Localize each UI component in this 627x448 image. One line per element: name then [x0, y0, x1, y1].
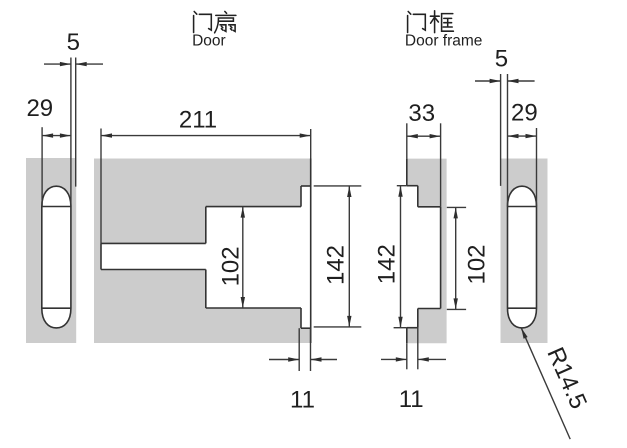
svg-text:29: 29	[26, 95, 53, 122]
svg-text:R14.5: R14.5	[541, 343, 592, 412]
svg-text:102: 102	[217, 246, 244, 286]
svg-text:5: 5	[67, 29, 80, 56]
svg-text:11: 11	[290, 387, 315, 414]
svg-text:33: 33	[408, 100, 435, 127]
svg-text:102: 102	[463, 244, 490, 284]
svg-text:29: 29	[511, 100, 538, 127]
svg-text:142: 142	[373, 244, 400, 284]
svg-text:211: 211	[179, 107, 217, 134]
svg-text:Door: Door	[192, 33, 226, 50]
svg-text:11: 11	[399, 386, 424, 413]
svg-text:5: 5	[495, 46, 508, 73]
svg-text:Door frame: Door frame	[405, 33, 483, 50]
svg-text:142: 142	[322, 245, 349, 285]
